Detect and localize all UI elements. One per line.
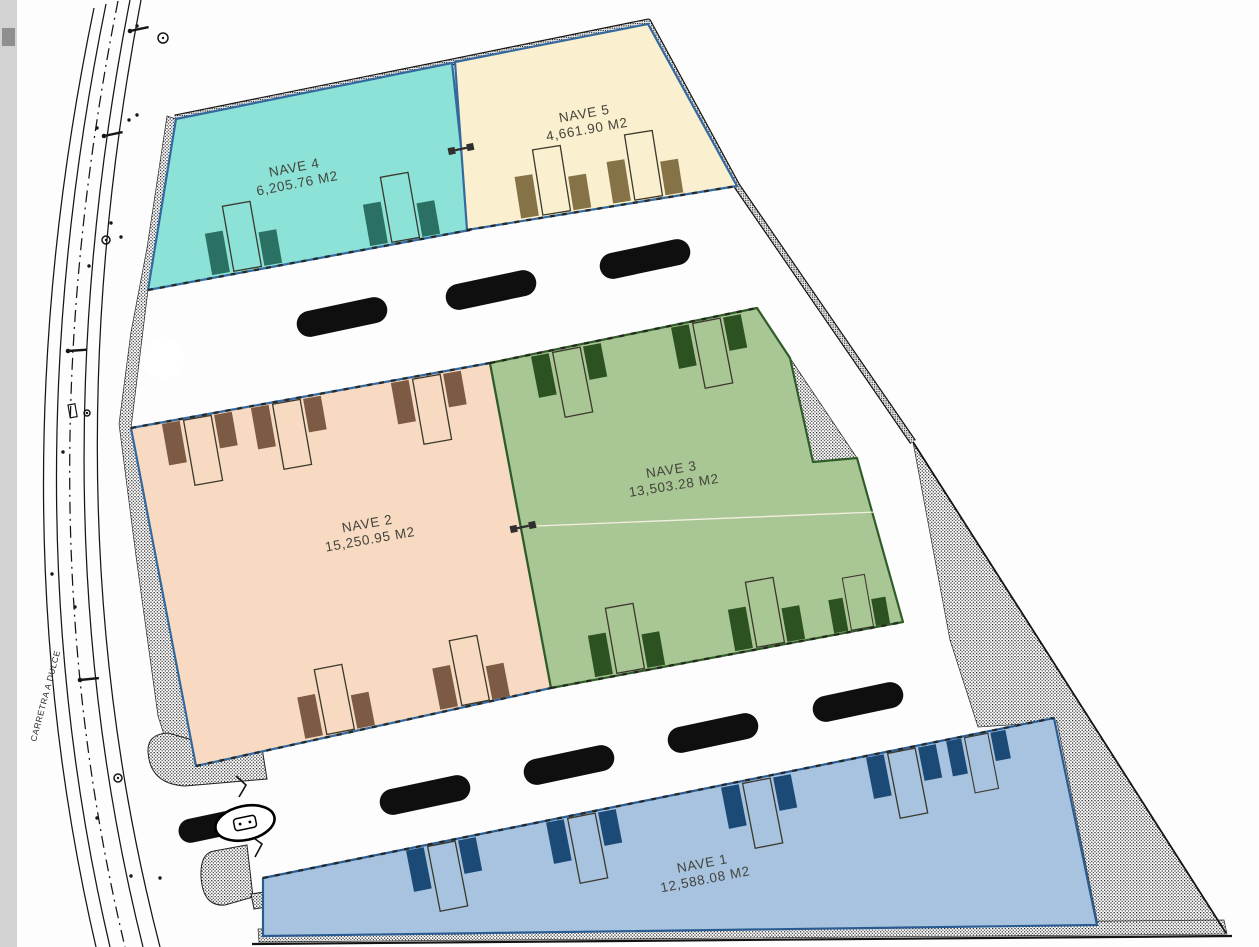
gate-booth-ellipse — [212, 800, 278, 846]
buildings-layer — [131, 24, 1097, 936]
entrance-gate — [212, 800, 278, 846]
road-station-dot — [158, 876, 161, 879]
manhole-center-dot — [105, 239, 107, 241]
scrollbar-thumb[interactable] — [2, 28, 15, 46]
parked-car — [521, 743, 616, 788]
building-nave-2 — [131, 363, 551, 766]
road-station-dot — [95, 126, 98, 129]
manhole-center-dot — [162, 37, 164, 39]
road-station-dot — [73, 605, 76, 608]
parked-car — [665, 711, 760, 756]
road-station-dot — [61, 450, 64, 453]
road-station-dot — [50, 572, 53, 575]
road-station-dot — [119, 235, 122, 238]
road-station-dot — [129, 874, 132, 877]
road-station-dot — [135, 113, 138, 116]
road-station-dot — [135, 24, 138, 27]
manhole-center-dot — [117, 777, 119, 779]
pole-line — [130, 27, 149, 31]
parked-car — [294, 295, 389, 340]
road-station-dot — [95, 816, 98, 819]
site-plan-viewer: CARRETRA A DULCE NAVE 46,205.76 M2NAVE 5… — [0, 0, 1259, 947]
turning-circle — [142, 337, 184, 379]
road-edge-line — [56, 4, 110, 947]
marker-block — [528, 521, 536, 529]
scrollbar-track[interactable] — [0, 0, 17, 947]
roadside-box-symbol — [68, 404, 77, 418]
marker-block — [466, 143, 474, 151]
parked-car — [377, 773, 472, 818]
entrance-curb-south — [201, 845, 253, 905]
pole-base-dot — [77, 677, 82, 682]
road-station-dot — [109, 221, 112, 224]
parked-car — [810, 680, 905, 725]
utility-pole-symbol — [66, 347, 88, 353]
pole-base-dot — [66, 349, 71, 354]
pole-line — [68, 350, 87, 351]
road-station-dot — [87, 264, 90, 267]
parked-car — [443, 268, 538, 313]
road-station-dot — [127, 118, 130, 121]
road-edge-line — [43, 8, 96, 947]
parked-car — [597, 237, 692, 282]
marker-block — [448, 147, 456, 155]
marker-block — [510, 525, 518, 533]
pole-base-dot — [101, 133, 106, 138]
site-plan-drawing: CARRETRA A DULCE NAVE 46,205.76 M2NAVE 5… — [0, 0, 1259, 947]
manhole-center-dot — [86, 412, 88, 414]
pole-base-dot — [127, 28, 132, 33]
